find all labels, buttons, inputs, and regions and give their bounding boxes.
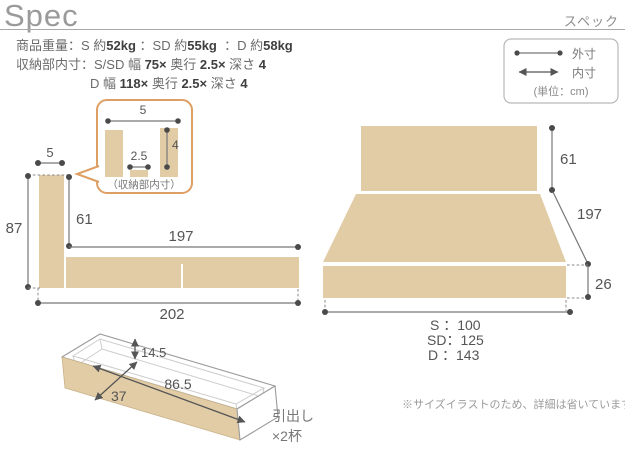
- width-semidouble: SD：125: [427, 332, 484, 348]
- drawer-caption-line2: ×2杯: [272, 428, 302, 444]
- legend-inner-label: 内寸: [572, 66, 596, 80]
- dim-drawer-height: 14.5: [141, 345, 166, 360]
- dim-headboard-thickness: 5: [46, 145, 53, 160]
- legend-dot: [514, 50, 519, 55]
- legend-unit-label: (単位：cm): [534, 84, 589, 98]
- storage-callout: 5 2.5 4 （収納部内寸）: [77, 100, 192, 193]
- front-mattress: [323, 194, 566, 262]
- side-headboard: [39, 175, 64, 288]
- dim-total-height: 87: [6, 220, 23, 237]
- legend-dot: [557, 50, 562, 55]
- spec-diagram-canvas: 外寸 内寸 (単位：cm) 5 87 61 197: [0, 0, 625, 474]
- legend-outer-label: 外寸: [572, 47, 596, 61]
- dim-front-base-height: 26: [595, 276, 612, 293]
- dim-front-depth: 197: [577, 206, 602, 223]
- dim-front-headboard-height: 61: [560, 151, 577, 168]
- callout-left-panel: [105, 130, 123, 177]
- drawer-caption-line1: 引出し: [272, 408, 314, 424]
- spec-sheet: Spec スペック 商品重量：S 約52kg ：SD 約55kg ：D 約58k…: [0, 0, 625, 474]
- callout-tail: [77, 166, 99, 182]
- callout-slot-bottom: [130, 170, 148, 177]
- front-view-diagram: 61 197 26 S ：100 SD：125 D ：143: [322, 125, 612, 363]
- dim-headboard-above-base: 61: [76, 211, 93, 228]
- dim-drawer-length: 86.5: [164, 376, 191, 392]
- size-disclaimer-note: ※サイズイラストのため、詳細は省いています。: [402, 397, 625, 411]
- drawer-diagram: 14.5 37 86.5 引出し ×2杯: [62, 334, 314, 444]
- legend-box: 外寸 内寸 (単位：cm): [504, 39, 618, 103]
- dim-slot-width: 2.5: [131, 149, 148, 163]
- dim-base-length: 197: [168, 228, 193, 245]
- dim-drawer-width: 37: [111, 388, 127, 404]
- dim-total-length: 202: [159, 306, 184, 323]
- dim-callout-width: 5: [140, 103, 147, 117]
- dim-slot-depth: 4: [172, 138, 179, 152]
- front-base: [323, 266, 566, 298]
- width-double: D ：143: [428, 347, 480, 363]
- front-headboard: [361, 126, 537, 191]
- width-single: S ：100: [430, 317, 481, 333]
- callout-caption: （収納部内寸）: [107, 178, 181, 191]
- callout-right-panel: [160, 128, 178, 177]
